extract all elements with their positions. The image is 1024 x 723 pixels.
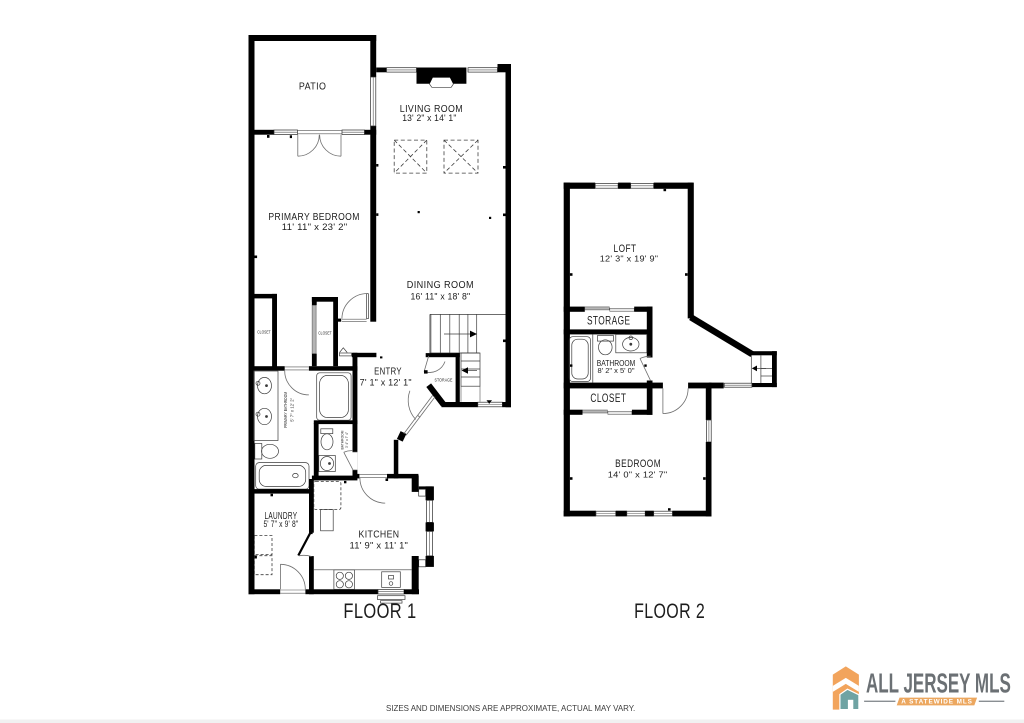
svg-text:A STATEWIDE MLS: A STATEWIDE MLS <box>901 698 973 705</box>
svg-text:PATIO: PATIO <box>299 82 326 93</box>
svg-text:5' 7" x 12' 2": 5' 7" x 12' 2" <box>290 397 295 421</box>
svg-text:KITCHEN: KITCHEN <box>359 530 400 541</box>
svg-text:BEDROOM: BEDROOM <box>615 458 661 470</box>
svg-text:ENTRY: ENTRY <box>374 367 402 378</box>
svg-text:5' 7" x 9' 8": 5' 7" x 9' 8" <box>263 519 298 529</box>
svg-text:14' 0" x 12' 7": 14' 0" x 12' 7" <box>608 470 668 479</box>
svg-text:12' 3" x 19' 9": 12' 3" x 19' 9" <box>600 255 659 264</box>
svg-text:STORAGE: STORAGE <box>435 377 453 382</box>
svg-text:FLOOR 2: FLOOR 2 <box>634 599 705 623</box>
svg-text:STORAGE: STORAGE <box>587 314 631 328</box>
svg-text:CLOSET: CLOSET <box>590 391 626 405</box>
svg-text:7' 1" x 12' 1": 7' 1" x 12' 1" <box>360 378 412 388</box>
svg-text:LOFT: LOFT <box>614 243 637 255</box>
svg-text:8' 2" x 5' 0": 8' 2" x 5' 0" <box>598 368 636 375</box>
svg-text:BATHROOM: BATHROOM <box>597 359 636 368</box>
svg-text:11' 9" x 11' 1": 11' 9" x 11' 1" <box>350 540 409 550</box>
svg-text:CLOSET: CLOSET <box>257 330 271 335</box>
svg-text:PRIMARY BATHROOM: PRIMARY BATHROOM <box>283 392 288 428</box>
svg-text:ALL JERSEY MLS: ALL JERSEY MLS <box>866 667 1011 698</box>
svg-text:16' 11" x 18' 8": 16' 11" x 18' 8" <box>411 291 471 301</box>
svg-text:FLOOR 1: FLOOR 1 <box>343 599 416 623</box>
svg-text:3' 4" x 7' 4": 3' 4" x 7' 4" <box>345 432 349 448</box>
svg-text:11' 11" x 23' 2": 11' 11" x 23' 2" <box>282 222 348 232</box>
svg-text:BATHROOM: BATHROOM <box>339 431 344 450</box>
svg-text:DINING ROOM: DINING ROOM <box>407 280 474 291</box>
svg-text:CLOSET: CLOSET <box>318 331 332 336</box>
svg-text:13' 2" x 14' 1": 13' 2" x 14' 1" <box>402 113 456 123</box>
svg-text:SIZES AND DIMENSIONS ARE APPRO: SIZES AND DIMENSIONS ARE APPROXIMATE, AC… <box>386 703 635 713</box>
